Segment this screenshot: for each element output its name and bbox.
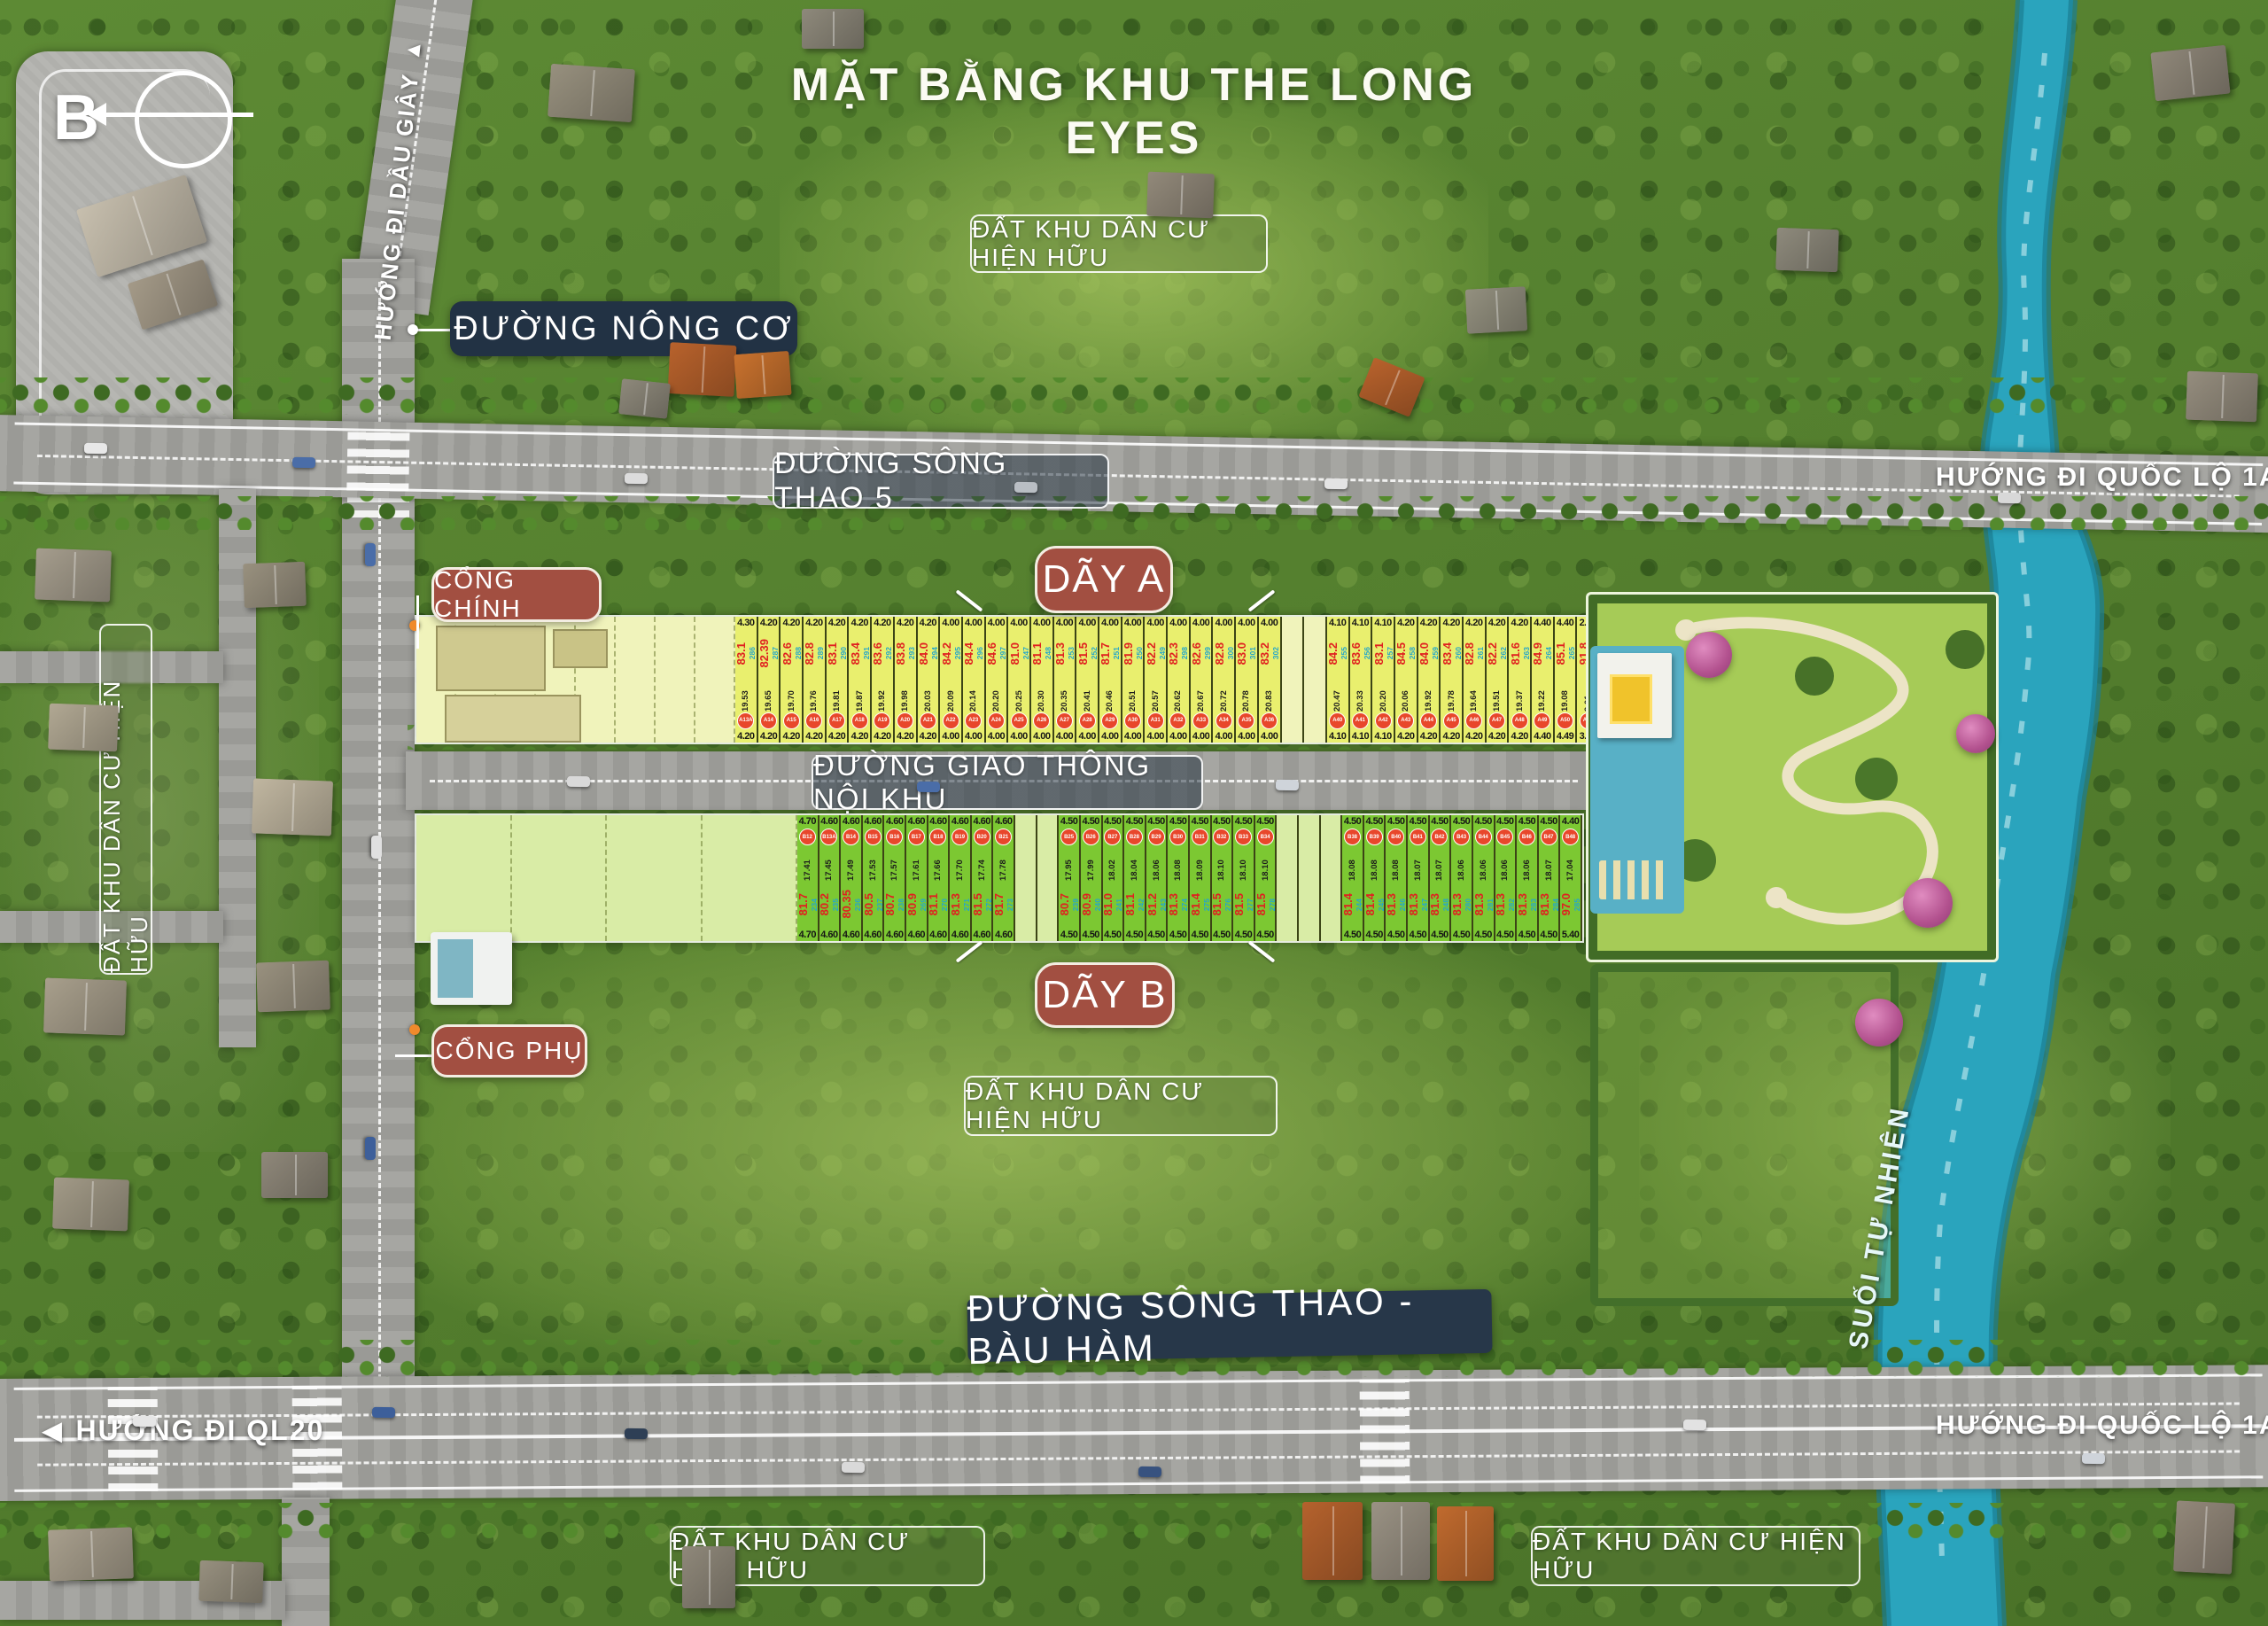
- lot-area: 80.9: [906, 893, 919, 915]
- lot-depth: 19.76: [809, 678, 819, 712]
- row-b-reserved-block: [416, 815, 797, 941]
- lot-B12: 4.70B1217.4181.72344.70: [797, 815, 819, 941]
- lot-front-width: 4.00: [1147, 617, 1164, 629]
- car-icon: [365, 543, 376, 566]
- lot-A20: 4.2083.829319.98A204.20: [895, 617, 918, 743]
- lot-plot-number: 302: [1271, 647, 1280, 659]
- lot-rear-width: 4.50: [1431, 929, 1448, 941]
- lot-id-badge: A50: [1557, 712, 1573, 729]
- lot-depth: 20.14: [968, 678, 978, 712]
- lot-id-badge: A36: [1261, 712, 1278, 729]
- existing-residential-text: ĐẤT KHU DÂN CƯ HIỆN HỮU: [972, 215, 1266, 272]
- lot-B31: 4.50B3118.0981.42754.50: [1190, 815, 1212, 941]
- lot-area-group: 80.5237: [863, 882, 884, 928]
- lot-depth: 18.07: [1413, 847, 1423, 881]
- lot-area-group: 82.2249: [1145, 630, 1166, 676]
- lot-id-badge: A45: [1443, 712, 1460, 729]
- lot-front-width: 4.60: [886, 815, 903, 828]
- lot-area-group: 81.1248: [1031, 630, 1052, 676]
- lot-front-width: 4.50: [1496, 815, 1513, 828]
- lot-area-group: 83.4291: [849, 630, 870, 676]
- direction-ql20: ◀ HƯỚNG ĐI QL20: [43, 1414, 324, 1447]
- lot-rear-width: 4.60: [843, 929, 859, 941]
- label-row-a: DÃY A: [1035, 546, 1173, 613]
- lot-plot-number: 288: [794, 647, 803, 659]
- lot-B44: 4.50B4418.0681.32814.50: [1473, 815, 1495, 941]
- lot-front-width: 4.10: [1374, 617, 1391, 629]
- lot-front-width: 4.60: [864, 815, 881, 828]
- house-icon: [618, 378, 671, 419]
- lot-rear-width: 4.00: [1192, 730, 1209, 743]
- lot-area: 81.9: [1122, 642, 1135, 665]
- lot-front-width: 4.00: [1033, 617, 1050, 629]
- lot-area: 81.3: [1386, 893, 1398, 915]
- lot-plot-number: 278: [1268, 899, 1277, 911]
- lot-plot-number: 270: [940, 899, 949, 911]
- label-road-song-thao-bau-ham: ĐƯỜNG SÔNG THAO - BÀU HÀM: [967, 1289, 1492, 1362]
- lot-rear-width: 4.00: [1010, 730, 1027, 743]
- lot-area-group: 83.6256: [1350, 630, 1371, 676]
- lot-area: 81.5: [1076, 642, 1089, 665]
- lot-rear-width: 4.60: [864, 929, 881, 941]
- lot-id-badge: A22: [943, 712, 959, 729]
- lot-B25: 4.50B2517.9580.72394.50: [1059, 815, 1081, 941]
- lot-front-width: 4.60: [908, 815, 925, 828]
- lot-id-badge: B21: [995, 829, 1012, 845]
- lot-depth: 18.06: [1152, 847, 1161, 881]
- lot-front-width: 4.60: [929, 815, 946, 828]
- house-icon: [2173, 1500, 2235, 1574]
- lot-front-width: 4.60: [951, 815, 968, 828]
- lot-area: 83.1: [827, 642, 839, 665]
- lot-depth: 20.83: [1264, 678, 1274, 712]
- lot-front-width: 4.50: [1083, 815, 1099, 828]
- lot-rear-width: 4.20: [874, 730, 890, 743]
- lot-rear-width: 4.70: [799, 929, 816, 941]
- lot-depth: 17.99: [1086, 847, 1096, 881]
- lot-depth: 20.03: [923, 678, 933, 712]
- car-icon: [365, 1137, 376, 1160]
- car-icon: [1324, 478, 1348, 489]
- lot-id-badge: A23: [965, 712, 982, 729]
- lot-depth: 20.25: [1014, 678, 1024, 712]
- house-icon: [198, 1560, 264, 1603]
- house-icon: [243, 562, 307, 608]
- row-b-bracket: [956, 940, 983, 962]
- lot-front-width: 4.00: [1261, 617, 1278, 629]
- lot-front-width: 4.00: [1169, 617, 1186, 629]
- lot-area-group: 81.0247: [1008, 630, 1029, 676]
- lot-plot-number: 291: [862, 647, 871, 659]
- direction-quoc-lo-1a-bottom: HƯỚNG ĐI QUỐC LỘ 1A ▶: [1936, 1411, 2268, 1441]
- lot-depth: 20.51: [1128, 678, 1138, 712]
- lot-B32: 4.50B3218.1081.52764.50: [1212, 815, 1234, 941]
- lot-rear-width: 4.50: [1256, 929, 1273, 941]
- lot-front-width: 4.00: [1056, 617, 1073, 629]
- row-a-text: DÃY A: [1043, 557, 1166, 602]
- lot-depth: 19.22: [1537, 678, 1547, 712]
- house-icon: [1371, 1502, 1430, 1580]
- compass-needle: [105, 113, 253, 117]
- lot-area: 81.0: [1008, 642, 1021, 665]
- lot-area-group: 80.7238: [884, 882, 905, 928]
- lot-id-badge: B29: [1148, 829, 1165, 845]
- crosswalk: [346, 428, 409, 491]
- lot-area: 80.7: [1059, 893, 1071, 915]
- lot-rear-width: 4.20: [851, 730, 868, 743]
- lot-id-badge: B19: [951, 829, 968, 845]
- lot-id-badge: A41: [1352, 712, 1369, 729]
- lot-plot-number: 246: [1398, 899, 1407, 911]
- lot-B46: 4.50B4618.0681.32834.50: [1517, 815, 1539, 941]
- lot-depth: 18.06: [1479, 847, 1488, 881]
- lot-plot-number: 277: [1246, 899, 1254, 911]
- lot-front-width: 4.20: [805, 617, 822, 629]
- existing-residential-text: ĐẤT KHU DÂN CƯ HIỆN HỮU: [966, 1078, 1276, 1134]
- lot-rear-width: 4.10: [1374, 730, 1391, 743]
- lot-front-width: 4.00: [1078, 617, 1095, 629]
- lot-area: 81.3: [950, 893, 962, 915]
- lot-plot-number: 250: [1135, 647, 1144, 659]
- up-arrow-icon: ▲: [400, 37, 427, 63]
- lot-front-width: 4.60: [843, 815, 859, 828]
- lot-plot-number: 292: [884, 647, 893, 659]
- lot-plot-number: 255: [1340, 647, 1348, 659]
- lot-front-width: 4.50: [1192, 815, 1208, 828]
- lot-plot-number: 238: [897, 899, 905, 911]
- lot-id-badge: B30: [1169, 829, 1186, 845]
- road-song-thao-5-text: ĐƯỜNG SÔNG THAO 5: [774, 447, 1107, 516]
- lot-unassigned: [1037, 815, 1060, 941]
- lot-area-group: 81.5277: [1233, 882, 1254, 928]
- lot-area-group: 85.1265: [1555, 630, 1576, 676]
- lot-plot-number: 249: [1158, 647, 1167, 659]
- house-icon: [261, 1152, 328, 1198]
- lot-plot-number: 237: [875, 899, 884, 911]
- lot-id-badge: A32: [1169, 712, 1186, 729]
- lot-id-badge: A49: [1534, 712, 1550, 729]
- lot-depth: 20.72: [1219, 678, 1229, 712]
- lot-id-badge: B43: [1453, 829, 1470, 845]
- lot-front-width: 4.20: [783, 617, 800, 629]
- lot-depth: 19.87: [855, 678, 865, 712]
- lot-unassigned: [1015, 815, 1037, 941]
- lot-id-badge: B27: [1104, 829, 1121, 845]
- lot-plot-number: 244: [1355, 899, 1363, 911]
- car-icon: [1014, 482, 1037, 493]
- lot-rear-width: 4.50: [1060, 929, 1077, 941]
- house-icon: [1775, 228, 1839, 272]
- lot-area-group: 81.3247: [1408, 882, 1429, 928]
- lot-front-width: 4.00: [1124, 617, 1141, 629]
- flower-tree: [1686, 632, 1732, 678]
- median-line: [14, 1424, 2263, 1442]
- lot-plot-number: 261: [1476, 647, 1485, 659]
- lot-area: 83.6: [1350, 642, 1363, 665]
- lot-id-badge: A27: [1056, 712, 1073, 729]
- lot-id-badge: B39: [1366, 829, 1383, 845]
- lot-B40: 4.50B4018.0881.32464.50: [1386, 815, 1408, 941]
- lot-area-group: 81.5252: [1076, 630, 1098, 676]
- left-arrow-icon: ◀: [43, 1416, 64, 1445]
- lot-area: 81.3: [1473, 893, 1486, 915]
- lot-area-group: 82.39287: [758, 630, 780, 676]
- lot-depth: 18.02: [1107, 847, 1117, 881]
- lot-area-group: 81.3271: [950, 882, 971, 928]
- lot-area-group: 81.9250: [1122, 630, 1144, 676]
- lot-depth: 20.46: [1105, 678, 1115, 712]
- label-existing-residential-top: ĐẤT KHU DÂN CƯ HIỆN HỮU: [970, 214, 1268, 273]
- lot-area: 81.3: [1495, 893, 1508, 915]
- lot-plot-number: 285: [1573, 899, 1581, 911]
- lot-front-width: 4.50: [1126, 815, 1143, 828]
- lot-depth: 20.06: [1401, 678, 1410, 712]
- lot-id-badge: A48: [1511, 712, 1528, 729]
- lot-id-badge: B40: [1387, 829, 1404, 845]
- lot-area: 83.0: [1236, 642, 1248, 665]
- lot-rear-width: 4.49: [1557, 730, 1573, 743]
- lot-rear-width: 4.50: [1518, 929, 1535, 941]
- lot-area-group: 82.8261: [1464, 630, 1485, 676]
- lot-id-badge: A29: [1101, 712, 1118, 729]
- lot-plot-number: 293: [907, 647, 916, 659]
- car-icon: [372, 1407, 395, 1418]
- lot-unassigned: [1299, 815, 1321, 941]
- lot-id-badge: A28: [1079, 712, 1096, 729]
- lot-plot-number: 301: [1248, 647, 1257, 659]
- lot-id-badge: B26: [1083, 829, 1099, 845]
- lot-id-badge: B12: [799, 829, 816, 845]
- lot-A48: 4.2081.626319.37A484.20: [1509, 617, 1532, 743]
- label-secondary-gate: CỔNG PHỤ: [431, 1024, 587, 1078]
- lot-area: 81.3: [1408, 893, 1420, 915]
- lot-rear-width: 4.50: [1126, 929, 1143, 941]
- lot-front-width: 4.00: [1192, 617, 1209, 629]
- car-icon: [1998, 493, 2021, 503]
- lot-area: 81.3: [1451, 893, 1464, 915]
- lot-A30: 4.0081.925020.51A304.00: [1122, 617, 1146, 743]
- lot-area: 81.3: [1168, 893, 1180, 915]
- lot-id-badge: A25: [1011, 712, 1028, 729]
- lot-id-badge: B42: [1431, 829, 1448, 845]
- lot-rear-width: 5.40: [1562, 929, 1579, 941]
- lot-plot-number: 299: [1203, 647, 1212, 659]
- existing-structure: [553, 629, 608, 668]
- lot-plot-number: 256: [1363, 647, 1371, 659]
- lot-rear-width: 4.40: [1534, 730, 1550, 743]
- lot-A46: 4.2082.826119.64A464.20: [1464, 617, 1487, 743]
- lot-unassigned: [1282, 617, 1305, 743]
- lot-A17: 4.2083.129019.81A174.20: [827, 617, 850, 743]
- flower-tree: [1903, 878, 1953, 928]
- lot-front-width: 4.20: [851, 617, 868, 629]
- lot-plot-number: 243: [1159, 899, 1168, 911]
- lot-area: 82.8: [1464, 642, 1476, 665]
- lot-A27: 4.0081.325320.35A274.00: [1054, 617, 1077, 743]
- lot-front-width: 4.50: [1518, 815, 1535, 828]
- house-icon: [1465, 286, 1528, 333]
- lot-area-group: 83.6292: [872, 630, 893, 676]
- lot-depth: 18.09: [1195, 847, 1205, 881]
- lot-depth: 17.04: [1565, 847, 1575, 881]
- lot-plot-number: 294: [930, 647, 939, 659]
- direction-quoc-lo-1a-text: HƯỚNG ĐI QUỐC LỘ 1A: [1936, 463, 2268, 493]
- lot-plot-number: 242: [1137, 899, 1146, 911]
- car-icon: [371, 836, 382, 859]
- house-icon: [35, 548, 112, 603]
- lot-depth: 19.92: [877, 678, 887, 712]
- lot-rear-width: 4.50: [1474, 929, 1491, 941]
- lot-id-badge: B28: [1126, 829, 1143, 845]
- lot-area: 81.7: [1099, 642, 1112, 665]
- lot-rear-width: 4.50: [1540, 929, 1557, 941]
- lot-rear-width: 4.20: [737, 730, 754, 743]
- lot-area: 82.8: [804, 642, 816, 665]
- lot-depth: 18.04: [1130, 847, 1139, 881]
- lot-A32: 4.0082.329820.62A324.00: [1168, 617, 1191, 743]
- lot-area-group: 80.9269: [906, 882, 928, 928]
- lot-plot-number: 252: [1090, 647, 1099, 659]
- reserved-divider: [695, 617, 735, 743]
- lot-depth: 19.98: [900, 678, 910, 712]
- lot-depth: 18.06: [1522, 847, 1532, 881]
- lot-area-group: 81.3282: [1495, 882, 1517, 928]
- lot-unassigned: [1321, 815, 1343, 941]
- lot-front-width: 4.00: [1216, 617, 1232, 629]
- lot-front-width: 4.20: [1511, 617, 1528, 629]
- lot-A50: 4.4085.126519.08A504.49: [1555, 617, 1578, 743]
- lot-area-group: 84.0259: [1418, 630, 1440, 676]
- lot-front-width: 4.40: [1534, 617, 1550, 629]
- lot-depth: 18.07: [1544, 847, 1554, 881]
- lot-area-group: 81.3248: [1430, 882, 1451, 928]
- lot-plot-number: 247: [1420, 899, 1429, 911]
- lot-area: 80.35: [841, 890, 853, 919]
- lot-area: 82.2: [1145, 642, 1157, 665]
- lot-plot-number: 297: [998, 647, 1007, 659]
- lot-front-width: 4.50: [1431, 815, 1448, 828]
- lot-plot-number: 272: [984, 899, 993, 911]
- lot-area: 81.3: [1539, 893, 1551, 915]
- lot-depth: 20.09: [946, 678, 956, 712]
- lot-plot-number: 241: [1115, 899, 1123, 911]
- lot-front-width: 4.20: [1397, 617, 1414, 629]
- label-existing-residential-mid: ĐẤT KHU DÂN CƯ HIỆN HỮU: [964, 1076, 1278, 1136]
- house-icon: [734, 351, 791, 399]
- existing-structure: [436, 626, 546, 691]
- lot-B14: 4.60B1417.4980.352364.60: [841, 815, 863, 941]
- lot-area-group: 81.1242: [1124, 882, 1146, 928]
- lot-A47: 4.2082.226219.51A474.20: [1487, 617, 1510, 743]
- lot-area-group: 84.2295: [940, 630, 961, 676]
- lot-area: 81.4: [1364, 893, 1377, 915]
- existing-residential-text: ĐẤT KHU DÂN CƯ HIỆN HỮU: [98, 626, 153, 973]
- lot-id-badge: A16: [805, 712, 822, 729]
- lot-area: 81.5: [1212, 893, 1224, 915]
- lot-id-badge: A30: [1124, 712, 1141, 729]
- lot-rear-width: 4.20: [897, 730, 913, 743]
- house-icon: [2150, 45, 2230, 102]
- lot-A26: 4.0081.124820.30A264.00: [1031, 617, 1054, 743]
- house-icon: [548, 64, 635, 122]
- lot-plot-number: 251: [1112, 647, 1121, 659]
- car-icon: [917, 782, 940, 792]
- lot-front-width: 4.40: [1557, 617, 1573, 629]
- lot-area-group: 84.0294: [918, 630, 939, 676]
- crosswalk: [1360, 1379, 1410, 1483]
- lot-rear-width: 4.20: [828, 730, 845, 743]
- lot-A33: 4.0082.629920.67A334.00: [1191, 617, 1214, 743]
- lot-area-group: 84.2255: [1327, 630, 1348, 676]
- car-icon: [567, 776, 590, 787]
- lot-depth: 20.20: [1379, 678, 1388, 712]
- master-plan-canvas: 4.3083.128619.53A13A4.204.2082.3928719.6…: [0, 0, 2268, 1626]
- lot-id-badge: B47: [1541, 829, 1557, 845]
- lot-depth: 20.20: [991, 678, 1001, 712]
- house-icon: [682, 1546, 735, 1608]
- car-icon: [625, 473, 648, 484]
- lot-depth: 20.41: [1083, 678, 1092, 712]
- lot-depth: 19.78: [1447, 678, 1456, 712]
- lot-area-group: 83.8293: [895, 630, 916, 676]
- lot-A41: 4.1083.625620.33A414.10: [1350, 617, 1373, 743]
- lot-plot-number: 245: [1377, 899, 1386, 911]
- lot-A13A: 4.3083.128619.53A13A4.20: [735, 617, 758, 743]
- lot-id-badge: A21: [920, 712, 936, 729]
- lot-rear-width: 4.20: [1442, 730, 1459, 743]
- fenced-lawn: [1590, 964, 1899, 1306]
- lot-front-width: 4.50: [1235, 815, 1252, 828]
- reserved-divider: [656, 617, 695, 743]
- row-a-lots: 4.3083.128619.53A13A4.204.2082.3928719.6…: [735, 617, 1600, 743]
- lot-A43: 4.2084.525820.06A434.20: [1395, 617, 1418, 743]
- lot-A24: 4.0084.629720.20A244.00: [986, 617, 1009, 743]
- lot-plot-number: 298: [1180, 647, 1189, 659]
- lot-plot-number: 275: [1202, 899, 1211, 911]
- lot-rear-width: 4.00: [1238, 730, 1254, 743]
- lot-id-badge: B15: [865, 829, 882, 845]
- lot-depth: 18.06: [1500, 847, 1510, 881]
- edge-line: [14, 1373, 2263, 1390]
- lot-area-group: 81.7234: [797, 882, 819, 928]
- lot-A45: 4.2083.426019.78A454.20: [1441, 617, 1464, 743]
- lot-front-width: 4.70: [799, 815, 816, 828]
- lot-rear-width: 4.00: [1261, 730, 1278, 743]
- lot-rear-width: 4.20: [1511, 730, 1528, 743]
- lot-area: 81.1: [1124, 893, 1137, 915]
- lot-area: 81.4: [1190, 893, 1202, 915]
- main-gate-text: CỔNG CHÍNH: [434, 566, 599, 623]
- lot-depth: 19.65: [764, 678, 773, 712]
- lot-rear-width: 4.00: [1169, 730, 1186, 743]
- lot-depth: 17.49: [846, 847, 856, 881]
- lot-B41: 4.50B4118.0781.32474.50: [1408, 815, 1430, 941]
- lot-B18: 4.60B1817.6681.12704.60: [928, 815, 951, 941]
- lot-B47: 4.50B4718.0781.32844.50: [1539, 815, 1561, 941]
- lot-area-group: 83.1290: [827, 630, 848, 676]
- lot-plot-number: 273: [1006, 899, 1014, 911]
- lot-rear-width: 4.20: [920, 730, 936, 743]
- lot-unassigned: [1304, 617, 1327, 743]
- lot-rear-width: 4.50: [1387, 929, 1404, 941]
- lot-rear-width: 4.20: [783, 730, 800, 743]
- lot-depth: 20.57: [1151, 678, 1161, 712]
- lot-area-group: 82.6299: [1191, 630, 1212, 676]
- lot-id-badge: A40: [1329, 712, 1346, 729]
- lot-depth: 19.37: [1515, 678, 1525, 712]
- car-icon: [292, 457, 315, 468]
- lot-front-width: 4.10: [1352, 617, 1369, 629]
